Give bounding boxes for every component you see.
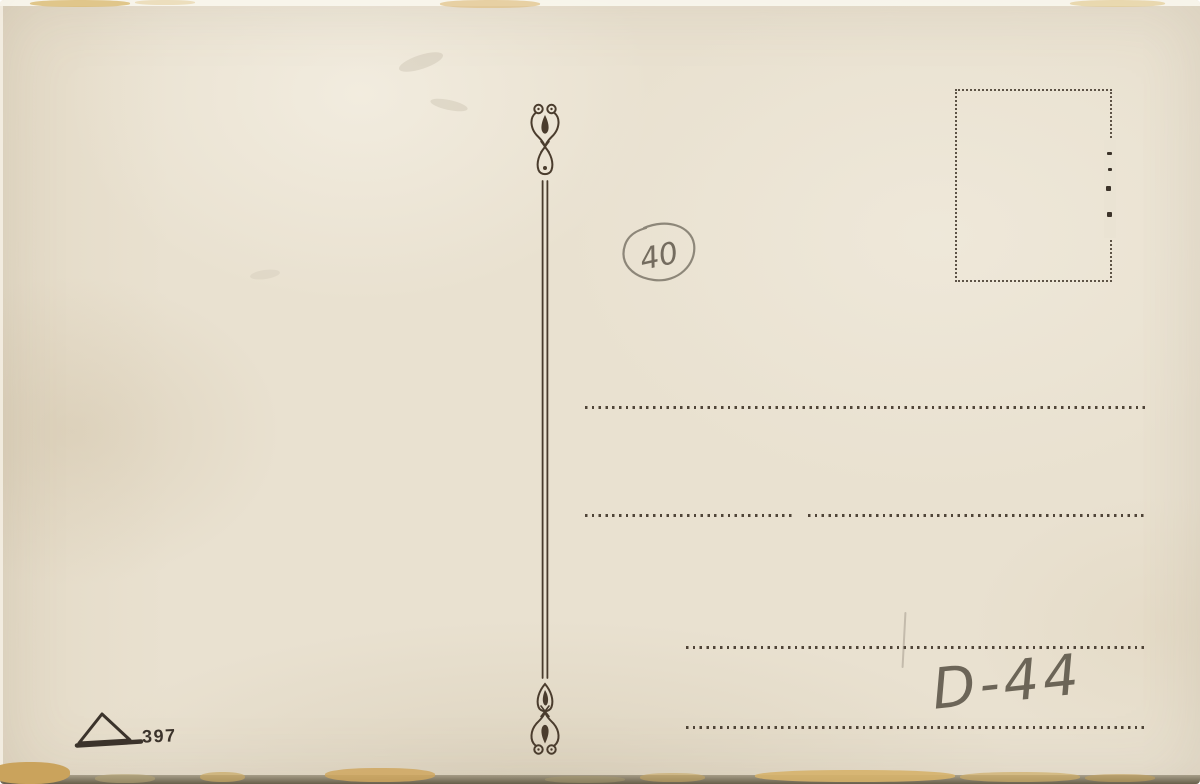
address-line-2 (585, 514, 795, 517)
edge-wear (325, 768, 435, 782)
pencil-smudge (397, 48, 445, 76)
stamp-box-border-mark (1107, 212, 1112, 217)
pencil-smudge (250, 268, 281, 281)
edge-wear (135, 0, 195, 5)
edge-wear (1085, 774, 1155, 782)
pencil-smudge (902, 612, 907, 668)
address-line-1 (585, 406, 1148, 409)
edge-wear (95, 774, 155, 783)
edge-wear (960, 772, 1080, 782)
edge-wear (0, 762, 70, 784)
stamp-box (955, 89, 1112, 282)
publisher-number: 397 (142, 725, 177, 747)
postcard-back: 40 D-44 397 (0, 0, 1200, 784)
circled-number-text: 40 (637, 236, 682, 278)
edge-wear (755, 770, 955, 782)
edge-wear (200, 772, 245, 782)
handwritten-code: D-44 (929, 642, 1086, 722)
address-line-4 (686, 726, 1148, 729)
ornamental-divider (515, 98, 575, 758)
pencil-smudge (429, 96, 468, 114)
stamp-box-border-mark (1106, 186, 1111, 191)
edge-wear (30, 0, 130, 7)
stamp-box-border-mark (1107, 152, 1112, 155)
edge-wear (440, 0, 540, 8)
address-line-2b (808, 514, 1146, 517)
torn-edge-left (0, 0, 3, 784)
edge-wear (640, 773, 705, 782)
edge-wear (1070, 0, 1165, 7)
edge-wear (545, 776, 625, 783)
handwritten-circled-number: 40 (612, 216, 708, 296)
stamp-box-border-mark (1108, 168, 1112, 171)
